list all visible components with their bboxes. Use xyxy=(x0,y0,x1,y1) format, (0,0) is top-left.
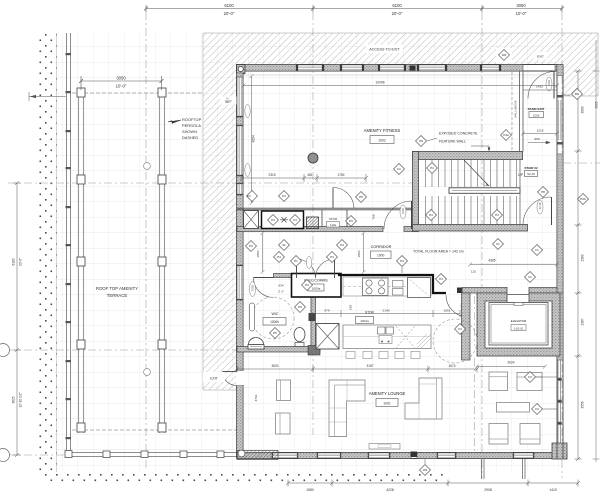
svg-text:3556: 3556 xyxy=(581,401,585,408)
svg-text:1002: 1002 xyxy=(401,208,405,214)
svg-text:ROOF TOP AMENITY: ROOF TOP AMENITY xyxy=(96,286,138,291)
svg-text:P5: P5 xyxy=(273,331,277,335)
svg-text:EXIT: EXIT xyxy=(210,377,218,381)
svg-text:1000: 1000 xyxy=(377,254,385,258)
svg-text:DASHED: DASHED xyxy=(182,135,198,140)
svg-text:SHOWN: SHOWN xyxy=(182,129,197,134)
svg-text:AMENITY FITNESS: AMENITY FITNESS xyxy=(364,128,401,133)
svg-text:2363: 2363 xyxy=(581,254,585,261)
svg-text:ELEVATOR: ELEVATOR xyxy=(511,319,527,323)
svg-text:P4: P4 xyxy=(430,166,434,170)
svg-text:4228: 4228 xyxy=(386,488,394,492)
svg-text:1500: 1500 xyxy=(256,250,260,257)
svg-text:20'-0": 20'-0" xyxy=(224,11,235,16)
svg-text:6100: 6100 xyxy=(392,3,402,8)
svg-text:F3: F3 xyxy=(535,407,539,411)
svg-text:P5: P5 xyxy=(359,195,363,199)
svg-text:S2-15: S2-15 xyxy=(527,172,535,176)
svg-text:RD: RD xyxy=(575,92,579,96)
svg-text:3050: 3050 xyxy=(516,3,526,8)
svg-text:P4: P4 xyxy=(330,255,334,259)
svg-text:F4: F4 xyxy=(293,218,297,222)
svg-text:125: 125 xyxy=(471,270,476,274)
svg-text:1005: 1005 xyxy=(251,285,255,291)
svg-text:F3: F3 xyxy=(458,327,462,331)
svg-text:FEATURE WALL: FEATURE WALL xyxy=(439,140,466,144)
svg-text:3050: 3050 xyxy=(116,76,126,81)
svg-text:UP: UP xyxy=(518,173,524,177)
svg-text:F1: F1 xyxy=(528,275,532,279)
svg-text:PERGOLA: PERGOLA xyxy=(182,123,201,128)
svg-text:765: 765 xyxy=(372,214,376,219)
svg-text:198: 198 xyxy=(349,305,353,310)
svg-text:979: 979 xyxy=(324,309,329,313)
svg-text:P8: P8 xyxy=(541,190,545,194)
svg-text:1432: 1432 xyxy=(536,85,543,89)
svg-text:TERRACE: TERRACE xyxy=(107,293,128,298)
svg-text:F1: F1 xyxy=(496,242,500,246)
svg-text:F1: F1 xyxy=(535,248,539,252)
svg-text:STOR: STOR xyxy=(329,217,338,221)
svg-text:1001a: 1001a xyxy=(360,319,369,323)
svg-text:P4: P4 xyxy=(495,213,499,217)
svg-text:P4: P4 xyxy=(439,277,443,281)
svg-text:950: 950 xyxy=(534,137,539,141)
svg-text:461: 461 xyxy=(307,173,313,177)
svg-text:P4: P4 xyxy=(429,213,433,217)
svg-text:2367: 2367 xyxy=(581,318,585,325)
svg-text:3625: 3625 xyxy=(12,396,16,403)
svg-text:1419: 1419 xyxy=(549,488,557,492)
svg-text:2140: 2140 xyxy=(383,309,390,313)
svg-text:1216: 1216 xyxy=(537,129,544,133)
svg-text:P9: P9 xyxy=(419,139,423,143)
svg-text:1-LE-01: 1-LE-01 xyxy=(514,326,524,330)
svg-text:P2A: P2A xyxy=(580,197,586,201)
svg-text:TOTAL FLOOR AREA = 142 sm: TOTAL FLOOR AREA = 142 sm xyxy=(413,250,464,254)
svg-text:1000b: 1000b xyxy=(270,320,279,324)
svg-text:2315: 2315 xyxy=(268,173,275,177)
svg-text:P4a: P4a xyxy=(503,133,509,137)
svg-text:W3: W3 xyxy=(502,53,507,57)
svg-text:20'-0": 20'-0" xyxy=(392,11,403,16)
svg-text:S1: S1 xyxy=(282,243,286,247)
svg-text:6100: 6100 xyxy=(12,258,16,265)
svg-text:W2: W2 xyxy=(423,468,428,472)
svg-text:STAIR EXIT: STAIR EXIT xyxy=(528,107,545,111)
svg-text:1754: 1754 xyxy=(337,173,344,177)
svg-text:1691: 1691 xyxy=(444,309,451,313)
svg-text:3197: 3197 xyxy=(366,364,373,368)
svg-text:6'-1": 6'-1" xyxy=(226,97,230,103)
svg-text:1000a: 1000a xyxy=(312,287,321,291)
svg-text:W/C: W/C xyxy=(272,312,279,316)
svg-text:1002: 1002 xyxy=(378,139,386,143)
svg-text:EXPOSED CONCRETE: EXPOSED CONCRETE xyxy=(439,132,478,136)
svg-text:3000: 3000 xyxy=(581,106,585,113)
svg-text:STOR.: STOR. xyxy=(365,311,375,315)
svg-text:WALL ABOVE: WALL ABOVE xyxy=(514,100,518,118)
svg-text:ACCESS TO EXIT: ACCESS TO EXIT xyxy=(369,48,400,52)
svg-text:P4: P4 xyxy=(249,244,253,248)
svg-text:3024: 3024 xyxy=(507,361,514,365)
svg-text:P4: P4 xyxy=(277,255,281,259)
svg-text:20'-0": 20'-0" xyxy=(19,258,23,266)
svg-text:F3: F3 xyxy=(528,375,532,379)
svg-text:F2: F2 xyxy=(397,167,401,171)
svg-text:10'-0": 10'-0" xyxy=(516,11,527,16)
svg-text:P1: P1 xyxy=(294,259,298,263)
svg-text:1500: 1500 xyxy=(357,250,361,257)
svg-text:1580: 1580 xyxy=(306,488,314,492)
svg-text:P3: P3 xyxy=(349,219,353,223)
svg-text:P4: P4 xyxy=(282,194,286,198)
svg-text:STAIR 02: STAIR 02 xyxy=(524,166,538,170)
svg-text:AMENITY LOUNGE: AMENITY LOUNGE xyxy=(369,391,406,396)
svg-text:634: 634 xyxy=(278,284,283,288)
svg-text:1001: 1001 xyxy=(383,402,391,406)
svg-text:10096: 10096 xyxy=(375,81,384,85)
svg-text:3005: 3005 xyxy=(595,101,599,108)
svg-text:1674: 1674 xyxy=(448,364,455,368)
svg-text:6100: 6100 xyxy=(224,3,234,8)
svg-text:3633: 3633 xyxy=(271,364,278,368)
svg-text:3761: 3761 xyxy=(254,394,258,401)
svg-text:P5: P5 xyxy=(298,305,302,309)
svg-text:CORRIDOR: CORRIDOR xyxy=(371,245,392,249)
svg-text:P4: P4 xyxy=(305,283,309,287)
svg-text:S2-16: S2-16 xyxy=(538,202,542,209)
svg-text:2908: 2908 xyxy=(484,488,492,492)
svg-text:4954: 4954 xyxy=(252,135,256,143)
svg-text:P4: P4 xyxy=(271,218,275,222)
svg-text:EXIT: EXIT xyxy=(537,55,544,59)
svg-text:10'-0": 10'-0" xyxy=(116,84,127,89)
svg-text:110a: 110a xyxy=(330,223,336,227)
svg-text:1003: 1003 xyxy=(533,113,540,117)
svg-text:F1: F1 xyxy=(247,194,251,198)
svg-text:ROOFTOP: ROOFTOP xyxy=(182,117,202,122)
svg-text:P4: P4 xyxy=(400,259,404,263)
svg-text:1003: 1003 xyxy=(547,80,551,86)
svg-text:2'-1": 2'-1" xyxy=(278,290,284,294)
svg-text:4385: 4385 xyxy=(488,259,495,263)
svg-text:12'-10 1/2": 12'-10 1/2" xyxy=(19,392,23,407)
svg-text:P4: P4 xyxy=(340,243,344,247)
